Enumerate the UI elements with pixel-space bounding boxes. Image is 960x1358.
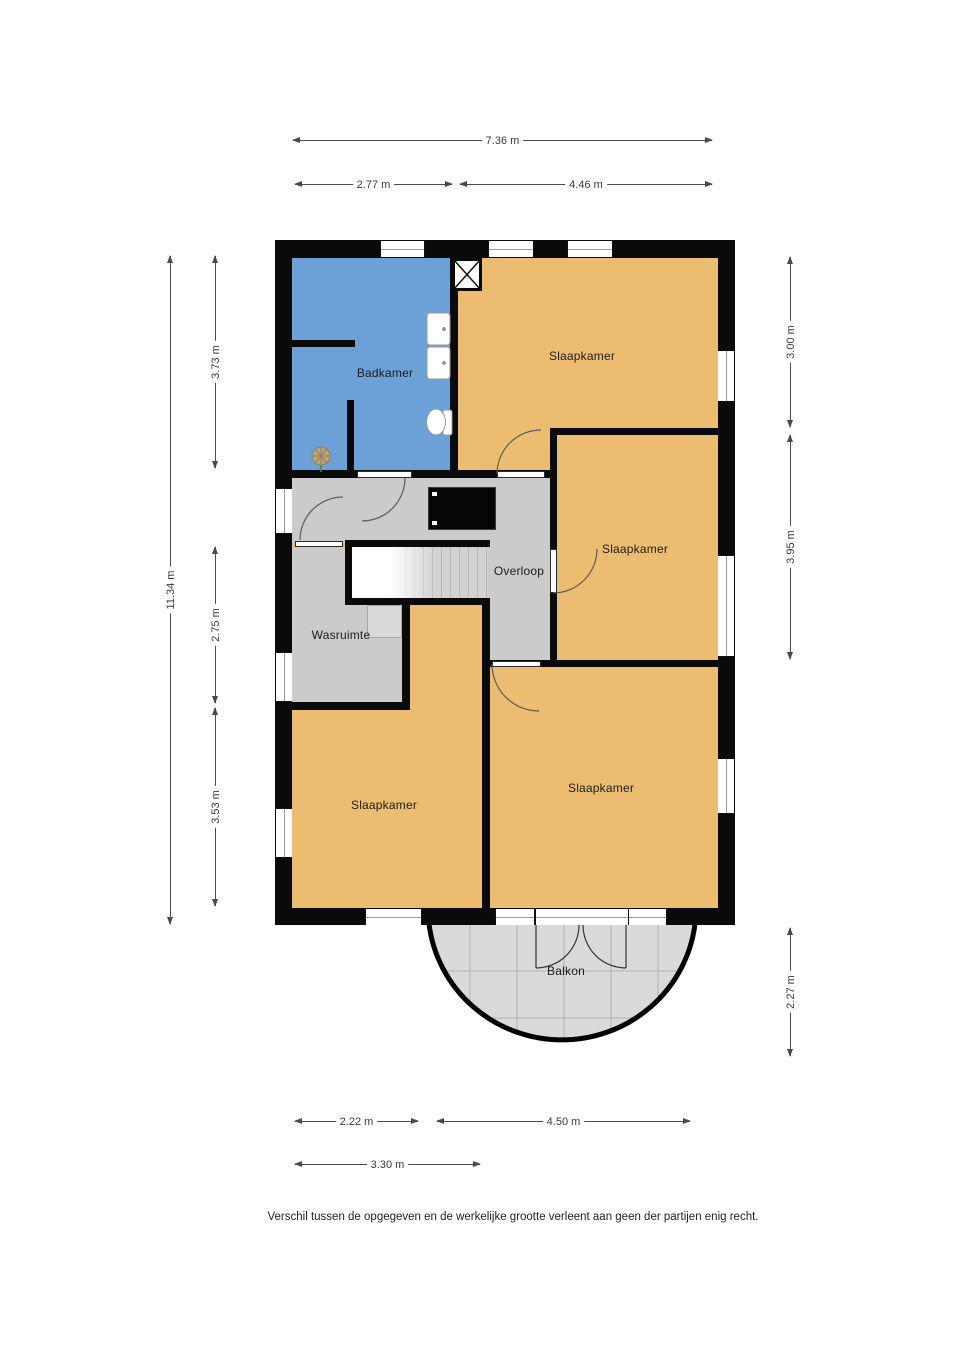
window-right-3: [718, 758, 734, 814]
dim-top-right: 4.46 m: [460, 184, 712, 185]
room-label-slaapkamer-top: Slaapkamer: [549, 349, 615, 363]
dim-left-lower: 3.53 m: [215, 708, 216, 906]
shaft-box: [452, 258, 482, 291]
wall-stairs-west: [345, 540, 352, 605]
cabinet: [428, 487, 496, 530]
window-right-1: [718, 350, 734, 402]
wall-bedroom-top-south: [550, 428, 718, 435]
dim-bottom-right: 4.50 m: [437, 1121, 690, 1122]
balcony-door-opening: [535, 909, 629, 925]
door-laundry: [295, 541, 343, 547]
dim-left-middle: 2.75 m: [215, 547, 216, 703]
disclaimer-text: Verschil tussen de opgegeven en de werke…: [268, 1211, 759, 1223]
landing-strip-floor: [488, 543, 550, 660]
room-label-overloop: Overloop: [494, 564, 544, 578]
room-label-slaapkamer-bottom-right: Slaapkamer: [568, 781, 634, 795]
door-bathroom: [357, 471, 412, 478]
wall-stairs-south: [345, 598, 490, 605]
wall-bath-stub-h: [292, 340, 355, 347]
room-label-wasruimte: Wasruimte: [312, 628, 371, 642]
balcony-french-doors: [536, 925, 626, 968]
window-left-3: [276, 808, 292, 858]
window-left-1: [276, 488, 292, 534]
wall-stairs-north: [345, 540, 490, 547]
window-top-2: [488, 241, 534, 257]
window-top-3: [567, 241, 613, 257]
dim-left-total: 11.34 m: [170, 256, 171, 924]
dim-top-left: 2.77 m: [295, 184, 452, 185]
window-bottom-3: [628, 909, 667, 925]
window-top-1: [380, 241, 425, 257]
window-bottom-1: [365, 909, 422, 925]
window-right-2: [718, 555, 734, 657]
dim-right-middle: 3.95 m: [790, 435, 791, 659]
dim-left-upper: 3.73 m: [215, 256, 216, 468]
dim-right-upper: 3.00 m: [790, 257, 791, 427]
wall-laundry-east: [402, 598, 410, 710]
dim-bottom-lower: 3.30 m: [295, 1164, 480, 1165]
dim-bottom-left: 2.22 m: [295, 1121, 418, 1122]
door-bedroom-top: [497, 471, 545, 478]
room-label-slaapkamer-mid: Slaapkamer: [602, 542, 668, 556]
room-label-balkon: Balkon: [547, 964, 585, 978]
room-label-slaapkamer-bottom-left: Slaapkamer: [351, 798, 417, 812]
door-bedroom-mid: [550, 549, 557, 593]
dim-top-total: 7.36 m: [293, 140, 712, 141]
wall-laundry-south: [292, 702, 410, 710]
washing-machine: [367, 605, 402, 638]
wall-bath-stub-v: [347, 400, 354, 470]
landing-upper-floor: [292, 478, 550, 543]
window-bottom-2: [495, 909, 535, 925]
room-label-badkamer: Badkamer: [357, 366, 413, 380]
wall-bath-bedroom: [450, 258, 458, 478]
wall-bedrooms-bottom-divider: [482, 598, 490, 908]
window-left-2: [276, 652, 292, 702]
floorplan-page: Badkamer Slaapkamer Slaapkamer Overloop …: [0, 0, 960, 1358]
dim-right-balkon: 2.27 m: [790, 928, 791, 1056]
staircase: [352, 543, 488, 598]
door-bedroom-bottom-right: [492, 661, 541, 667]
